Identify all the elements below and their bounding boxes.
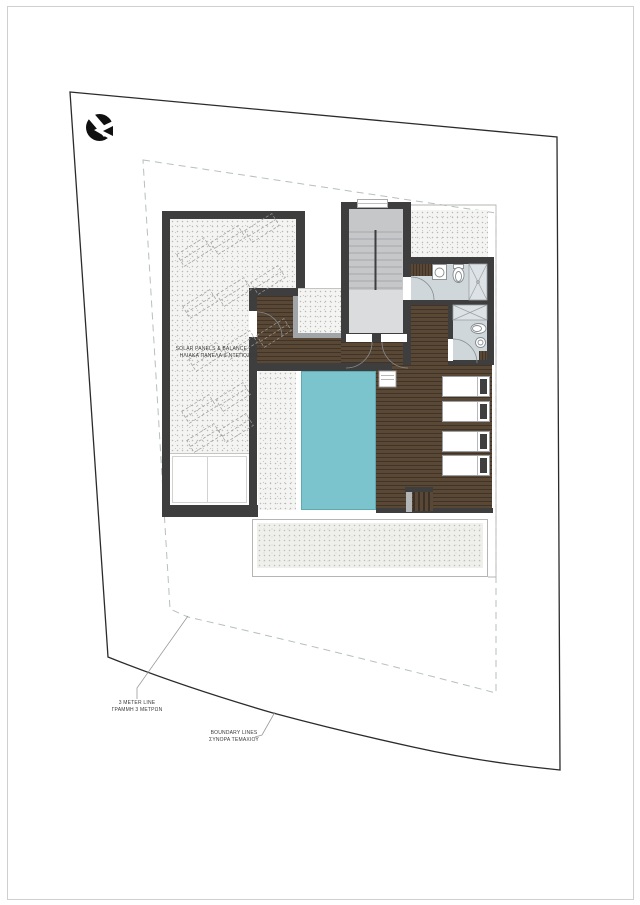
door-arc-bath-lower xyxy=(453,339,477,363)
solar-panel-array xyxy=(177,214,292,453)
shower-lower xyxy=(453,305,487,320)
toilet-lower xyxy=(471,324,486,334)
drawing-sheet: SOLAR PANELS & BALANCE TANK ΗΛΙΑΚΑ ΠΑΝΕΛ… xyxy=(0,0,640,905)
boundary-lines-label-gr: ΣΥΝΟΡΑ ΤΕΜΑΧΙΟΥ xyxy=(209,737,259,744)
boundary-lines-label: BOUNDARY LINES ΣΥΝΟΡΑ ΤΕΜΑΧΙΟΥ xyxy=(209,730,259,743)
solar-panels-label-en: SOLAR PANELS & BALANCE TANK xyxy=(176,346,263,353)
boundary-lines-label-en: BOUNDARY LINES xyxy=(209,730,259,737)
door-arc-solar xyxy=(257,312,282,337)
toilet-upper xyxy=(453,268,464,283)
plan-detail-linework xyxy=(0,0,640,905)
door-arc-vestibule-right xyxy=(382,342,408,368)
door-swings xyxy=(257,277,477,368)
pool-skimmer xyxy=(379,371,396,387)
meter-line-label-en: 3 METER LINE xyxy=(112,700,163,707)
door-arc-bath-upper xyxy=(411,277,434,300)
door-arc-vestibule-left xyxy=(346,342,372,368)
solar-panels-label: SOLAR PANELS & BALANCE TANK ΗΛΙΑΚΑ ΠΑΝΕΛ… xyxy=(176,346,263,359)
sink-lower xyxy=(476,338,486,348)
meter-line-label: 3 METER LINE ΓΡΑΜΜΗ 3 ΜΕΤΡΩΝ xyxy=(112,700,163,713)
solar-panels-label-gr: ΗΛΙΑΚΑ ΠΑΝΕΛΑ & ΝΤΕΠΟΖΙΤΑ xyxy=(176,353,263,360)
shower-upper xyxy=(469,264,487,300)
meter-line-label-gr: ΓΡΑΜΜΗ 3 ΜΕΤΡΩΝ xyxy=(112,707,163,714)
